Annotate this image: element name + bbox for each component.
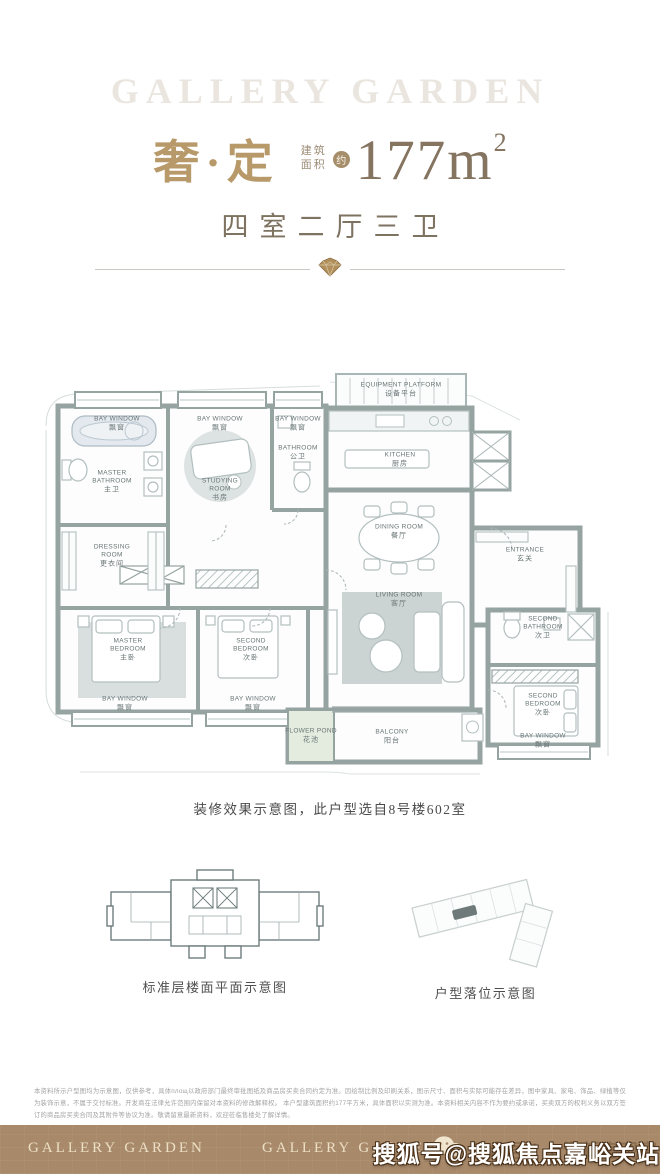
label-bay-window-top-3: BAY WINDOW飘窗 xyxy=(275,416,321,433)
divider xyxy=(95,258,565,280)
sohu-watermark: 搜狐号@搜狐焦点嘉峪关站 xyxy=(373,1135,660,1169)
label-flower-pond: FLOWER POND花池 xyxy=(283,728,339,745)
label-second-bedroom-left: SECOND BEDROOM次卧 xyxy=(223,638,279,663)
unit-location-drawing xyxy=(401,858,571,970)
label-studying-room: STUDYING ROOM书房 xyxy=(192,478,248,503)
diamond-gem-icon xyxy=(318,257,342,282)
unit-location-caption: 户型落位示意图 xyxy=(398,983,573,1002)
footer-bar: GALLERY GARDEN GALLERY GARDEN 公众号 | 上海新房… xyxy=(0,1125,660,1174)
label-bay-window-bottom-2: BAY WINDOW飘窗 xyxy=(230,696,276,713)
label-bay-window-bottom-right: BAY WINDOW飘窗 xyxy=(520,733,566,750)
label-master-bathroom: MASTER BATHROOM主卫 xyxy=(84,470,140,495)
shaft-boxes xyxy=(472,432,510,490)
layout-subtitle: 四室二厅三卫 xyxy=(0,205,660,244)
title-block: 奢·定 建筑 面积 约 177m2 xyxy=(0,126,660,192)
unit-location-diagram: 户型落位示意图 xyxy=(398,858,573,1002)
divider-line-right xyxy=(350,269,565,270)
approx-badge: 约 xyxy=(333,151,350,168)
label-bathroom: BATHROOM公卫 xyxy=(278,445,317,462)
standard-floor-caption: 标准层楼面平面示意图 xyxy=(100,977,330,996)
area-label-line2: 面积 xyxy=(301,159,327,171)
label-second-bathroom: SECOND BATHROOM次卫 xyxy=(515,616,571,641)
label-master-bedroom: MASTER BEDROOM主卧 xyxy=(100,638,156,663)
area-label: 建筑 面积 xyxy=(301,145,327,173)
disclaimer: 本资料所示户型图均为示意图，仅供参考，具体площ以政府部门最终审批图纸及商品房… xyxy=(34,1086,626,1122)
standard-floor-diagram: 标准层楼面平面示意图 xyxy=(100,862,330,996)
label-living-room: LIVING ROOM客厅 xyxy=(376,592,423,609)
label-entrance: ENTRANCE玄关 xyxy=(506,547,544,564)
area-group: 建筑 面积 约 177m2 xyxy=(301,130,507,189)
page-title: 奢·定 xyxy=(153,126,278,192)
label-dressing-room: DRESSING ROOM更衣间 xyxy=(84,544,140,569)
divider-line-left xyxy=(95,269,310,270)
label-dining-room: DINING ROOM餐厅 xyxy=(375,524,423,541)
area-value: 177m2 xyxy=(356,130,507,189)
label-bay-window-top-2: BAY WINDOW飘窗 xyxy=(197,416,243,433)
label-equipment-platform: EQUIPMENT PLATFORM设备平台 xyxy=(361,382,442,399)
plan-caption: 装修效果示意图，此户型选自8号楼602室 xyxy=(0,798,660,818)
area-label-line1: 建筑 xyxy=(301,145,327,157)
label-second-bedroom-right: SECOND BEDROOM次卧 xyxy=(515,693,571,718)
washer xyxy=(462,714,483,741)
label-bay-window-bottom-1: BAY WINDOW飘窗 xyxy=(102,696,148,713)
footer-logo-left: GALLERY GARDEN xyxy=(28,1140,205,1157)
area-number: 177m xyxy=(356,129,494,192)
brand-watermark-top: GALLERY GARDEN xyxy=(0,70,660,112)
poster-page: GALLERY GARDEN 奢·定 建筑 面积 约 177m2 四室二厅三卫 xyxy=(0,0,660,1174)
label-bay-window-top-1: BAY WINDOW飘窗 xyxy=(94,416,140,433)
label-balcony: BALCONY阳台 xyxy=(375,729,408,746)
standard-floor-drawing xyxy=(105,862,325,964)
area-superscript: 2 xyxy=(494,128,507,157)
floorplan: BAY WINDOW飘窗 BAY WINDOW飘窗 BAY WINDOW飘窗 M… xyxy=(20,360,640,792)
label-kitchen: KITCHEN厨房 xyxy=(385,452,416,469)
